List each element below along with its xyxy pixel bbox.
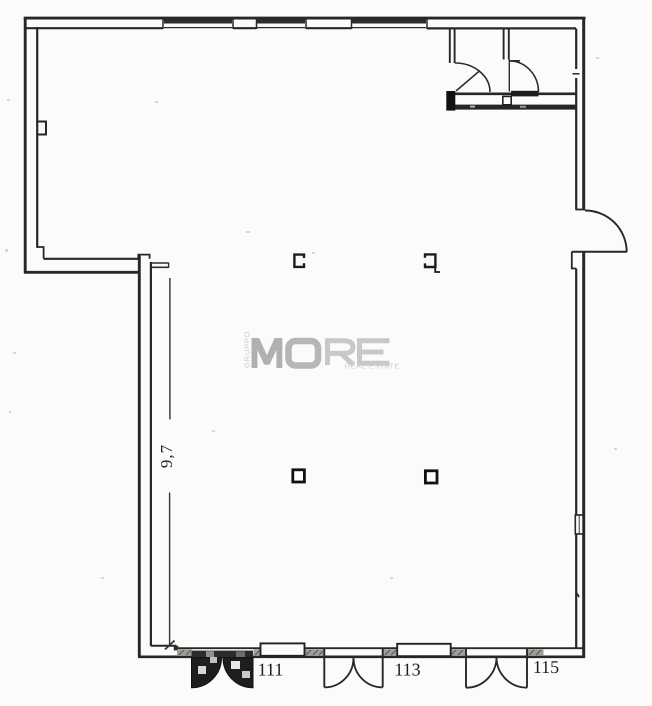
- svg-text:111: 111: [258, 659, 284, 679]
- svg-text:115: 115: [533, 657, 559, 677]
- svg-text:9,7: 9,7: [157, 444, 176, 468]
- svg-text:REAL ESTATE: REAL ESTATE: [345, 361, 401, 370]
- svg-text:GRUPPO: GRUPPO: [243, 331, 252, 368]
- svg-text:113: 113: [394, 659, 420, 679]
